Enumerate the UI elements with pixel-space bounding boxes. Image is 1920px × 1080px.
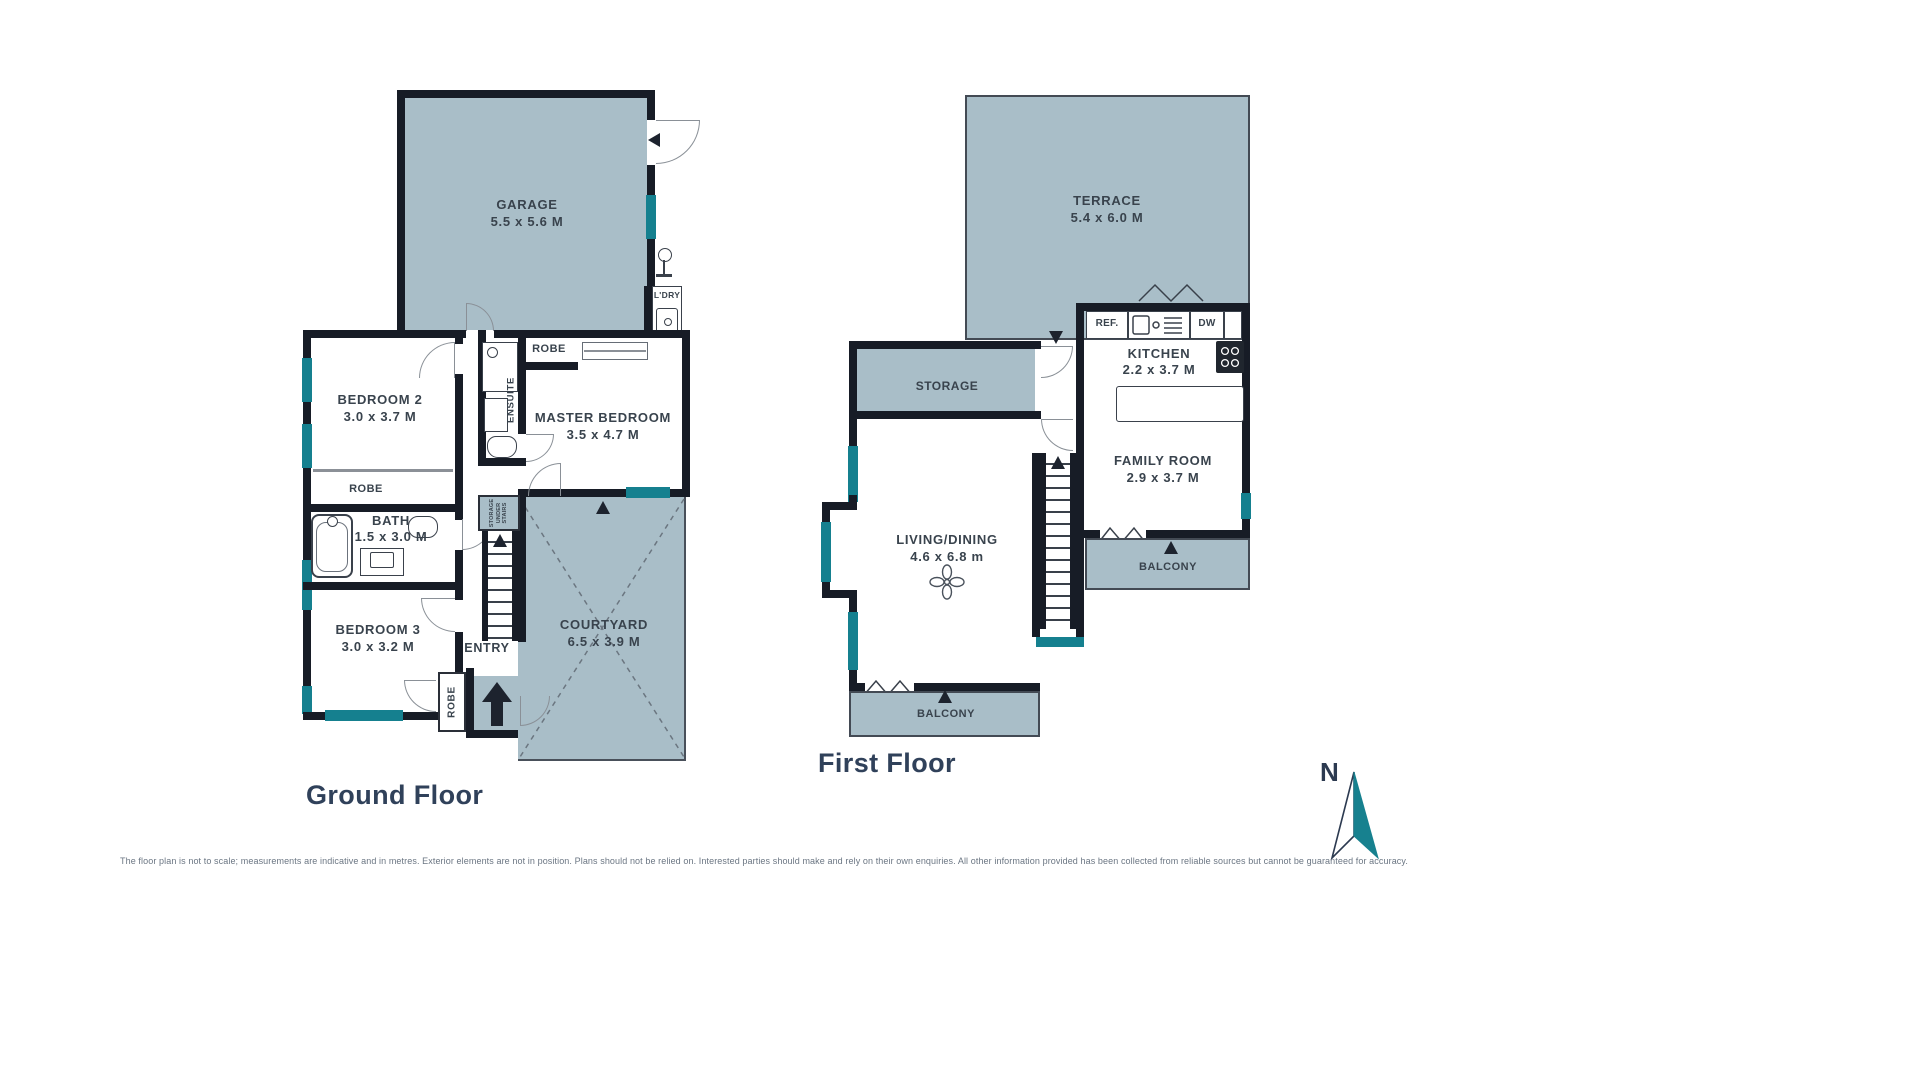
door-swing [656,120,700,164]
stairs-up-arrow-icon [1051,456,1065,469]
kitchen-island [1116,386,1244,422]
robe-bedroom2-label: ROBE [349,483,383,495]
robe-rail [584,350,646,352]
kitchen-dims: 2.2 x 3.7 M [1123,362,1196,377]
tap-icon [658,248,672,262]
tap-stem-icon [663,260,665,274]
dishwasher-label: DW [1198,318,1215,329]
fridge-label: REF. [1096,318,1119,329]
first-floor-title: First Floor [818,748,956,779]
door-swing [1041,419,1073,451]
wall [455,550,463,582]
wall [849,341,857,419]
terrace-dims: 5.4 x 6.0 M [1071,210,1144,225]
tap-base-icon [656,274,672,277]
wall [466,668,474,738]
wall [644,286,652,336]
wall [914,683,1040,691]
kitchen-label: KITCHEN [1128,346,1191,361]
bedroom3-dims: 3.0 x 3.2 M [342,639,415,654]
window-marker [302,686,312,714]
wall [303,610,311,686]
courtyard-door-icon [596,501,610,514]
terrace-door-icon [1049,331,1063,344]
stairs [1040,453,1076,629]
entry-arrow-icon [480,680,514,728]
wall [1076,303,1250,311]
ensuite-sink-icon [484,398,508,432]
courtyard-label: COURTYARD [560,617,648,632]
ensuite-label: ENSUITE [506,377,517,423]
sink-drain-icon [664,318,672,326]
wall [455,466,463,508]
door-swing [1041,346,1073,378]
wall [518,330,526,434]
wall [1076,303,1084,411]
wall [455,330,463,344]
wall [478,458,526,466]
balcony-arrow-icon [1164,541,1178,554]
door-swing [526,434,554,462]
wall [303,712,325,720]
wall [1146,530,1250,538]
laundry-label: L'DRY [654,290,680,300]
family-room-dims: 2.9 x 3.7 M [1127,470,1200,485]
wall [849,411,1041,419]
wall [397,90,655,98]
vanity-basin-icon [370,552,394,568]
wall [303,330,311,358]
door-swing [419,342,455,378]
window-marker [1036,637,1084,647]
wall [303,582,463,590]
wall [303,402,311,424]
counter [1224,311,1242,339]
bath-label: BATH [372,513,410,528]
window-marker [646,195,656,239]
storage-label: STORAGE [916,379,979,393]
master-bedroom-label: MASTER BEDROOM [535,410,671,425]
ceiling-fan-icon [929,564,965,600]
wall [647,239,655,286]
wall [849,590,857,612]
robe-rail [313,469,453,472]
door-swing [421,598,455,632]
balcony-family-label: BALCONY [1139,561,1197,573]
stove-burners-icon [1218,343,1242,371]
wall [397,90,405,338]
wall [682,330,690,497]
stairs [482,531,518,641]
bedroom2-dims: 3.0 x 3.7 M [344,409,417,424]
wall [303,468,311,560]
toilet-icon [487,436,517,458]
master-bedroom-dims: 3.5 x 4.7 M [567,427,640,442]
living-dining-label: LIVING/DINING [896,532,998,547]
window-marker [848,446,858,502]
wall [303,504,463,512]
garage-label: GARAGE [496,197,557,212]
terrace-label: TERRACE [1073,193,1141,208]
robe3-label: ROBE [447,686,458,718]
window-marker [821,522,831,582]
ground-floor-title: Ground Floor [306,780,483,811]
bathtub-inner [316,522,348,572]
window-marker [626,487,670,498]
footer-disclaimer: The floor plan is not to scale; measurem… [120,856,1450,866]
shower-head-icon [487,347,498,358]
storage-under-stairs-label: STORAGE UNDER STAIRS [489,498,509,528]
wall [518,362,578,370]
door-swing [528,463,561,496]
balcony-arrow-icon [938,690,952,703]
window-marker [302,358,312,402]
kitchen-sink-basins-icon [1132,314,1186,336]
garage-dims: 5.5 x 5.6 M [491,214,564,229]
window-marker [325,710,403,721]
door-swing [404,680,436,712]
wall [303,330,466,338]
wall [647,165,655,195]
wall [849,341,1041,349]
terrace-louvre-icon [1138,284,1204,302]
wall [647,90,655,120]
stairs-up-arrow-icon [493,534,507,547]
wall [1032,453,1040,637]
wall [466,730,518,738]
balcony-living-label: BALCONY [917,708,975,720]
compass-needle-icon [1316,760,1396,860]
wall [1076,411,1084,637]
wall [455,374,463,470]
courtyard-dims: 6.5 x 3.9 M [568,634,641,649]
bedroom2-label: BEDROOM 2 [337,392,422,407]
wall [455,590,463,600]
window-marker [302,424,312,468]
wall [822,502,830,522]
bedroom3-label: BEDROOM 3 [335,622,420,637]
bath-dims: 1.5 x 3.0 M [355,529,428,544]
robe-master-label: ROBE [532,343,566,355]
entry-label: ENTRY [464,641,509,655]
bath-tap-icon [327,516,338,527]
family-room-label: FAMILY ROOM [1114,453,1212,468]
window-marker [1241,493,1251,519]
door-direction-icon [648,133,660,147]
wall [849,411,857,446]
living-dining-dims: 4.6 x 6.8 m [910,549,983,564]
window-marker [848,612,858,670]
